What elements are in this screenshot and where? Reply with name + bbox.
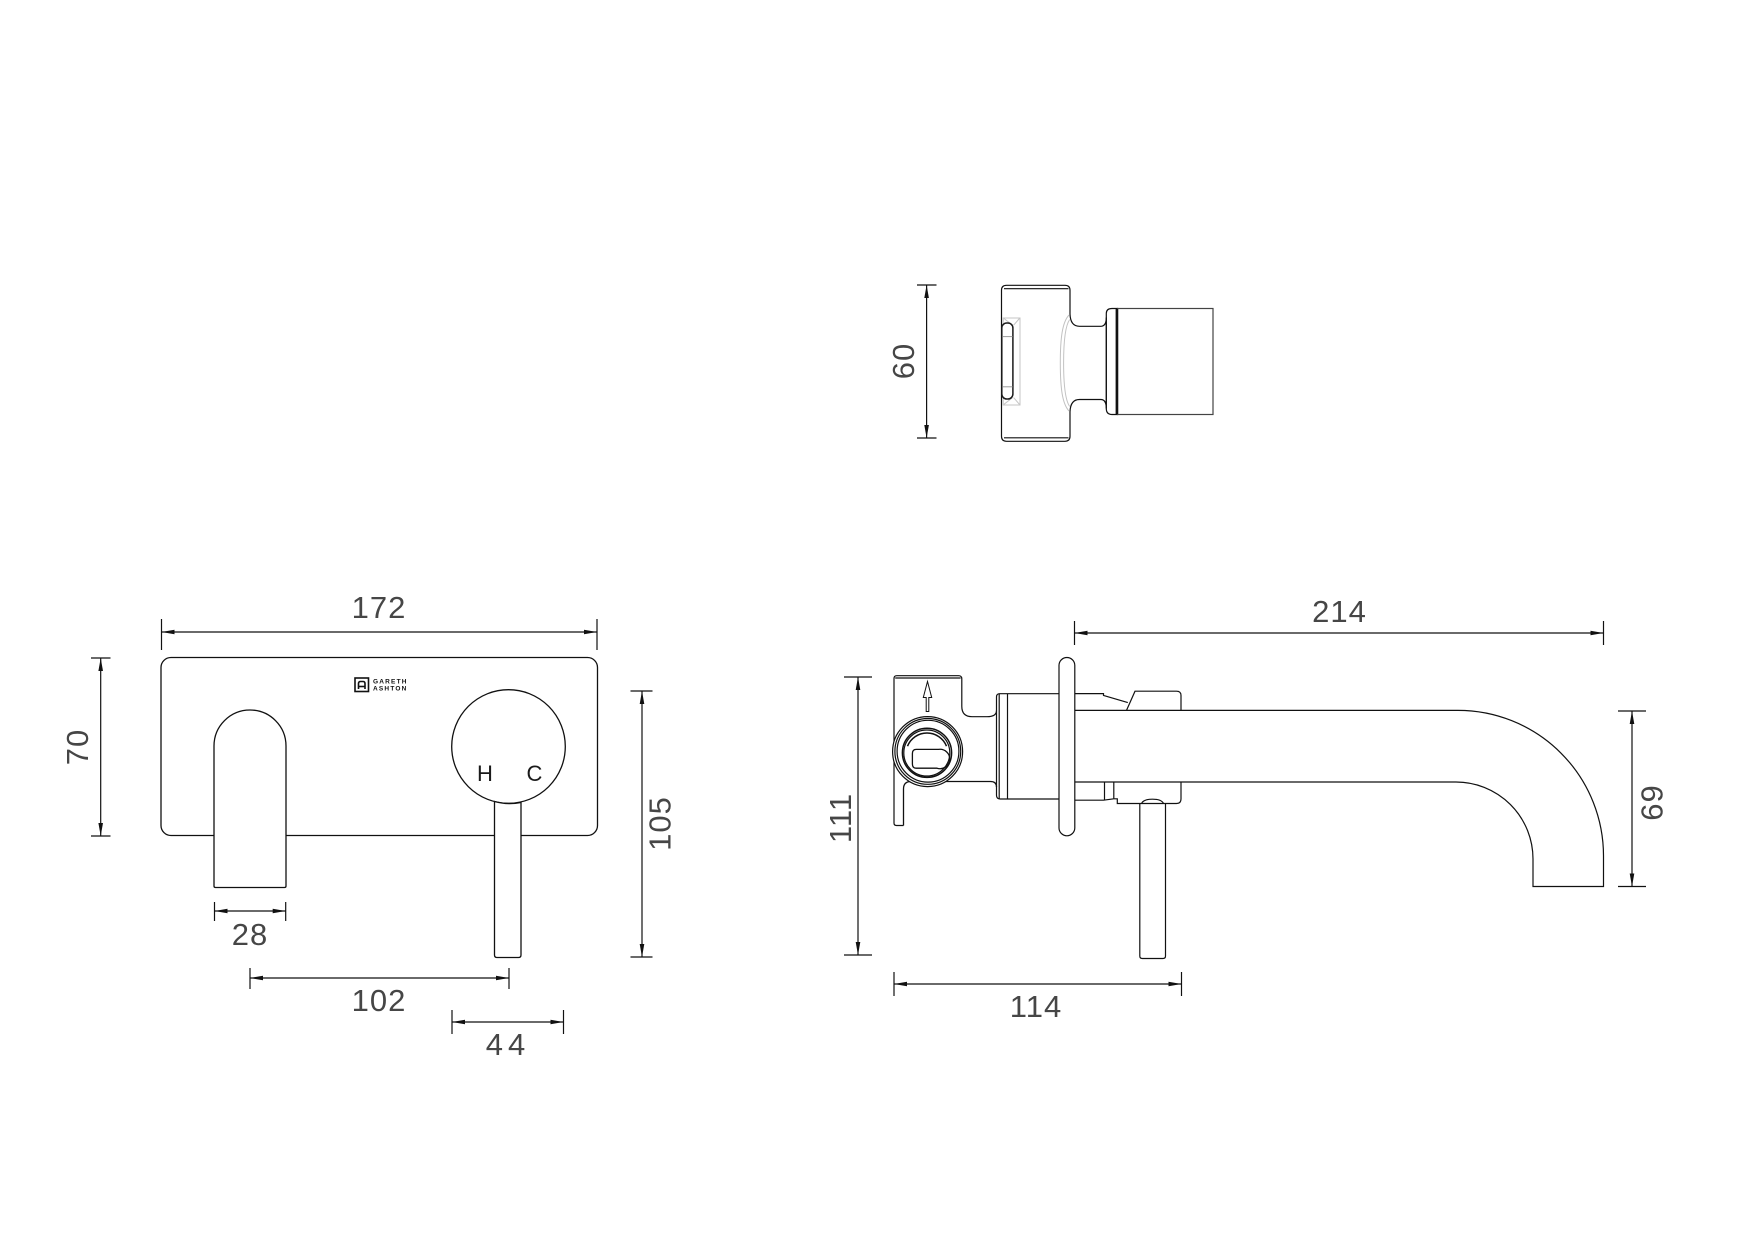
svg-text:102: 102 [352, 983, 407, 1018]
svg-text:114: 114 [1010, 989, 1062, 1024]
svg-text:44: 44 [486, 1027, 530, 1062]
svg-text:70: 70 [60, 729, 95, 765]
svg-text:111: 111 [823, 793, 858, 843]
svg-text:H: H [477, 761, 493, 786]
svg-text:28: 28 [232, 917, 268, 952]
svg-text:105: 105 [643, 796, 678, 851]
svg-text:214: 214 [1312, 594, 1367, 629]
svg-text:69: 69 [1635, 784, 1670, 820]
svg-text:60: 60 [886, 343, 921, 379]
svg-text:GARETH: GARETH [373, 679, 408, 686]
svg-text:ASHTON: ASHTON [373, 686, 408, 693]
svg-text:172: 172 [352, 590, 407, 625]
svg-text:C: C [527, 761, 543, 786]
